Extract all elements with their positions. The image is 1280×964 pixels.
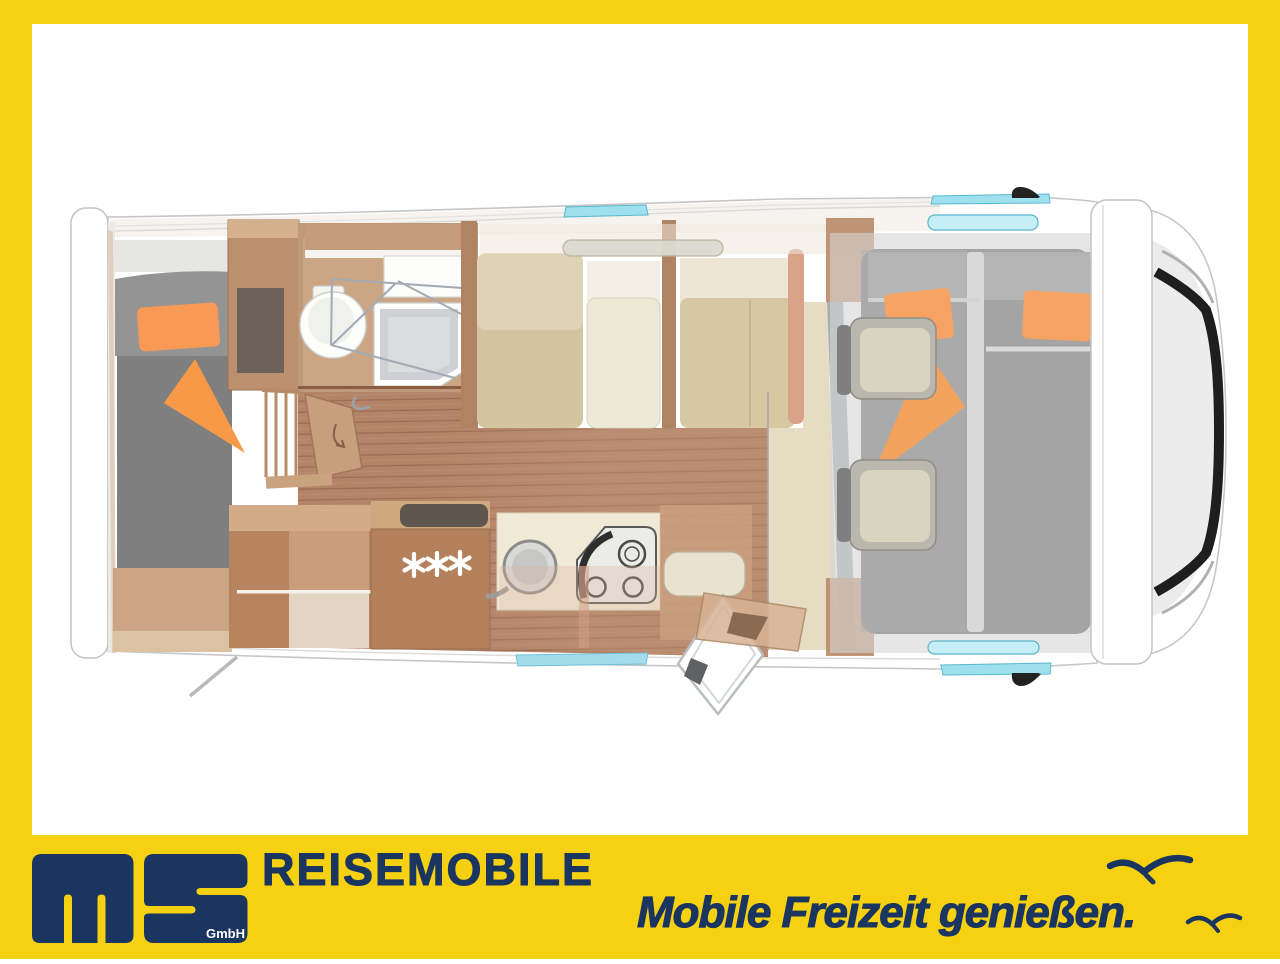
svg-text:GmbH: GmbH xyxy=(206,926,245,941)
svg-text:Mobile Freizeit genießen.: Mobile Freizeit genießen. xyxy=(637,888,1135,937)
svg-text:REISEMOBILE: REISEMOBILE xyxy=(262,844,594,895)
